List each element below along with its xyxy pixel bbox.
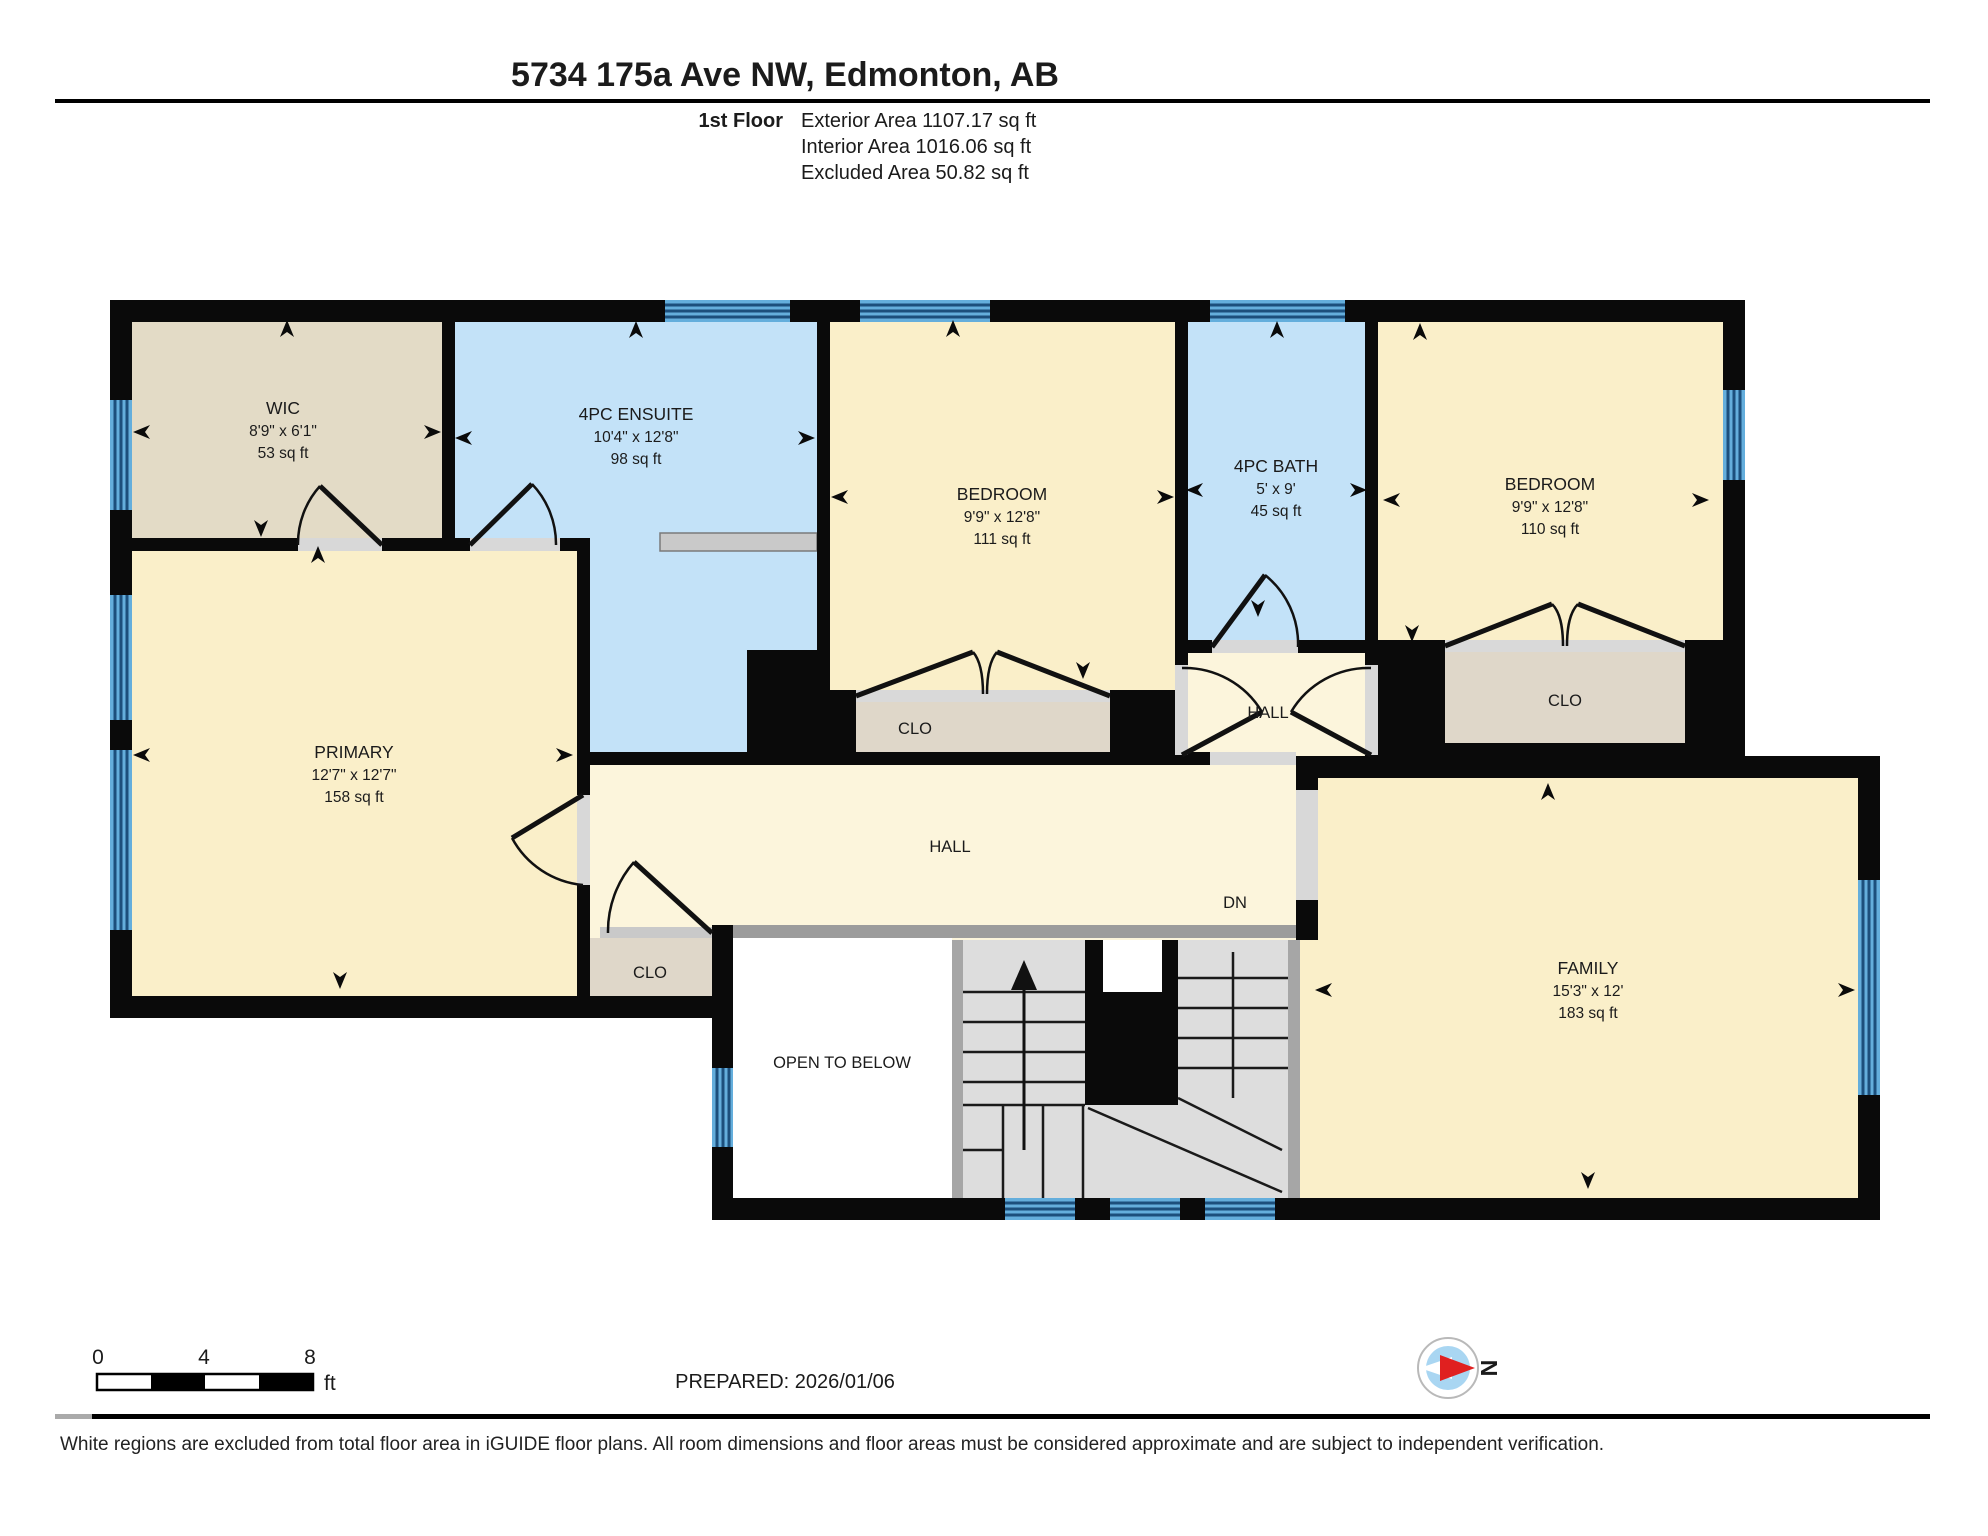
label-open-to-below: OPEN TO BELOW xyxy=(773,1054,911,1072)
label-wic-name: WIC xyxy=(266,398,300,418)
ensuite-counter xyxy=(660,533,817,551)
label-bath-name: 4PC BATH xyxy=(1234,456,1318,476)
window-left-primary-2 xyxy=(110,750,132,930)
stat-interior: Interior Area 1016.06 sq ft xyxy=(801,136,1032,158)
hall-closet-sill xyxy=(600,927,712,938)
compass-north-label: N xyxy=(1476,1360,1502,1377)
stat-exterior: Exterior Area 1107.17 sq ft xyxy=(801,110,1037,132)
label-family-name: FAMILY xyxy=(1558,958,1619,978)
window-left-wic xyxy=(110,400,132,510)
floor-plan-canvas: 5734 175a Ave NW, Edmonton, AB 1st Floor… xyxy=(0,0,1988,1536)
label-dn: DN xyxy=(1223,894,1247,912)
footer-rule-stub xyxy=(55,1414,92,1419)
header-rule xyxy=(55,99,1930,103)
label-clo-bedroom1: CLO xyxy=(898,720,932,738)
label-bedroom2-dims: 9'9" x 12'8" xyxy=(1512,499,1588,516)
label-hall-main: HALL xyxy=(929,838,970,856)
label-primary-name: PRIMARY xyxy=(314,742,394,762)
label-bedroom1-dims: 9'9" x 12'8" xyxy=(964,509,1040,526)
compass-icon: N xyxy=(1418,1338,1502,1398)
label-bedroom2-area: 110 sq ft xyxy=(1521,521,1580,538)
label-bath-area: 45 sq ft xyxy=(1251,503,1303,520)
floor-plan-page: 5734 175a Ave NW, Edmonton, AB 1st Floor… xyxy=(0,0,1988,1536)
label-bedroom1-area: 111 sq ft xyxy=(973,531,1031,548)
window-open-below-left xyxy=(712,1068,733,1147)
label-hall-small: HALL xyxy=(1247,704,1288,722)
open-below-railing xyxy=(733,925,1296,938)
window-bedroom2-right xyxy=(1723,390,1745,480)
label-bedroom2-name: BEDROOM xyxy=(1505,474,1595,494)
window-left-primary-1 xyxy=(110,595,132,720)
window-family-right xyxy=(1858,880,1880,1095)
window-top-ensuite xyxy=(665,300,790,322)
label-primary-dims: 12'7" x 12'7" xyxy=(311,767,396,784)
page-title: 5734 175a Ave NW, Edmonton, AB xyxy=(511,56,1059,94)
window-top-bedroom1 xyxy=(860,300,990,322)
stat-excluded: Excluded Area 50.82 sq ft xyxy=(801,162,1029,184)
label-ensuite-area: 98 sq ft xyxy=(611,451,663,468)
header: 5734 175a Ave NW, Edmonton, AB 1st Floor… xyxy=(55,56,1930,184)
label-ensuite-name: 4PC ENSUITE xyxy=(579,404,694,424)
scale-unit: ft xyxy=(324,1372,336,1395)
label-family-dims: 15'3" x 12' xyxy=(1553,983,1624,1000)
label-wic-area: 53 sq ft xyxy=(258,445,310,462)
prepared-date: PREPARED: 2026/01/06 xyxy=(675,1371,895,1393)
closet2-sill xyxy=(1445,640,1685,652)
closet-bedroom1 xyxy=(856,702,1110,752)
footer-rule xyxy=(92,1414,1930,1419)
label-wic-dims: 8'9" x 6'1" xyxy=(249,423,317,440)
scale-bar: 0 4 8 ft xyxy=(92,1346,336,1395)
footer: 0 4 8 ft PREPARED: 2026/01/06 N White re… xyxy=(55,1338,1930,1455)
label-bath-dims: 5' x 9' xyxy=(1256,481,1296,498)
window-bottom-2 xyxy=(1110,1198,1180,1220)
label-family-area: 183 sq ft xyxy=(1558,1005,1618,1022)
window-top-bath xyxy=(1210,300,1345,322)
scale-tick-0: 0 xyxy=(92,1346,104,1369)
disclaimer-text: White regions are excluded from total fl… xyxy=(60,1434,1604,1455)
label-clo-hall: CLO xyxy=(633,964,667,982)
room-hall-small xyxy=(1188,640,1365,765)
floor-label: 1st Floor xyxy=(699,110,784,132)
scale-tick-8: 8 xyxy=(304,1346,316,1369)
label-bedroom1-name: BEDROOM xyxy=(957,484,1047,504)
label-ensuite-dims: 10'4" x 12'8" xyxy=(593,429,678,446)
window-bottom-1 xyxy=(1005,1198,1075,1220)
label-primary-area: 158 sq ft xyxy=(324,789,384,806)
label-clo-bedroom2: CLO xyxy=(1548,692,1582,710)
window-bottom-3 xyxy=(1205,1198,1275,1220)
scale-tick-4: 4 xyxy=(198,1346,210,1369)
